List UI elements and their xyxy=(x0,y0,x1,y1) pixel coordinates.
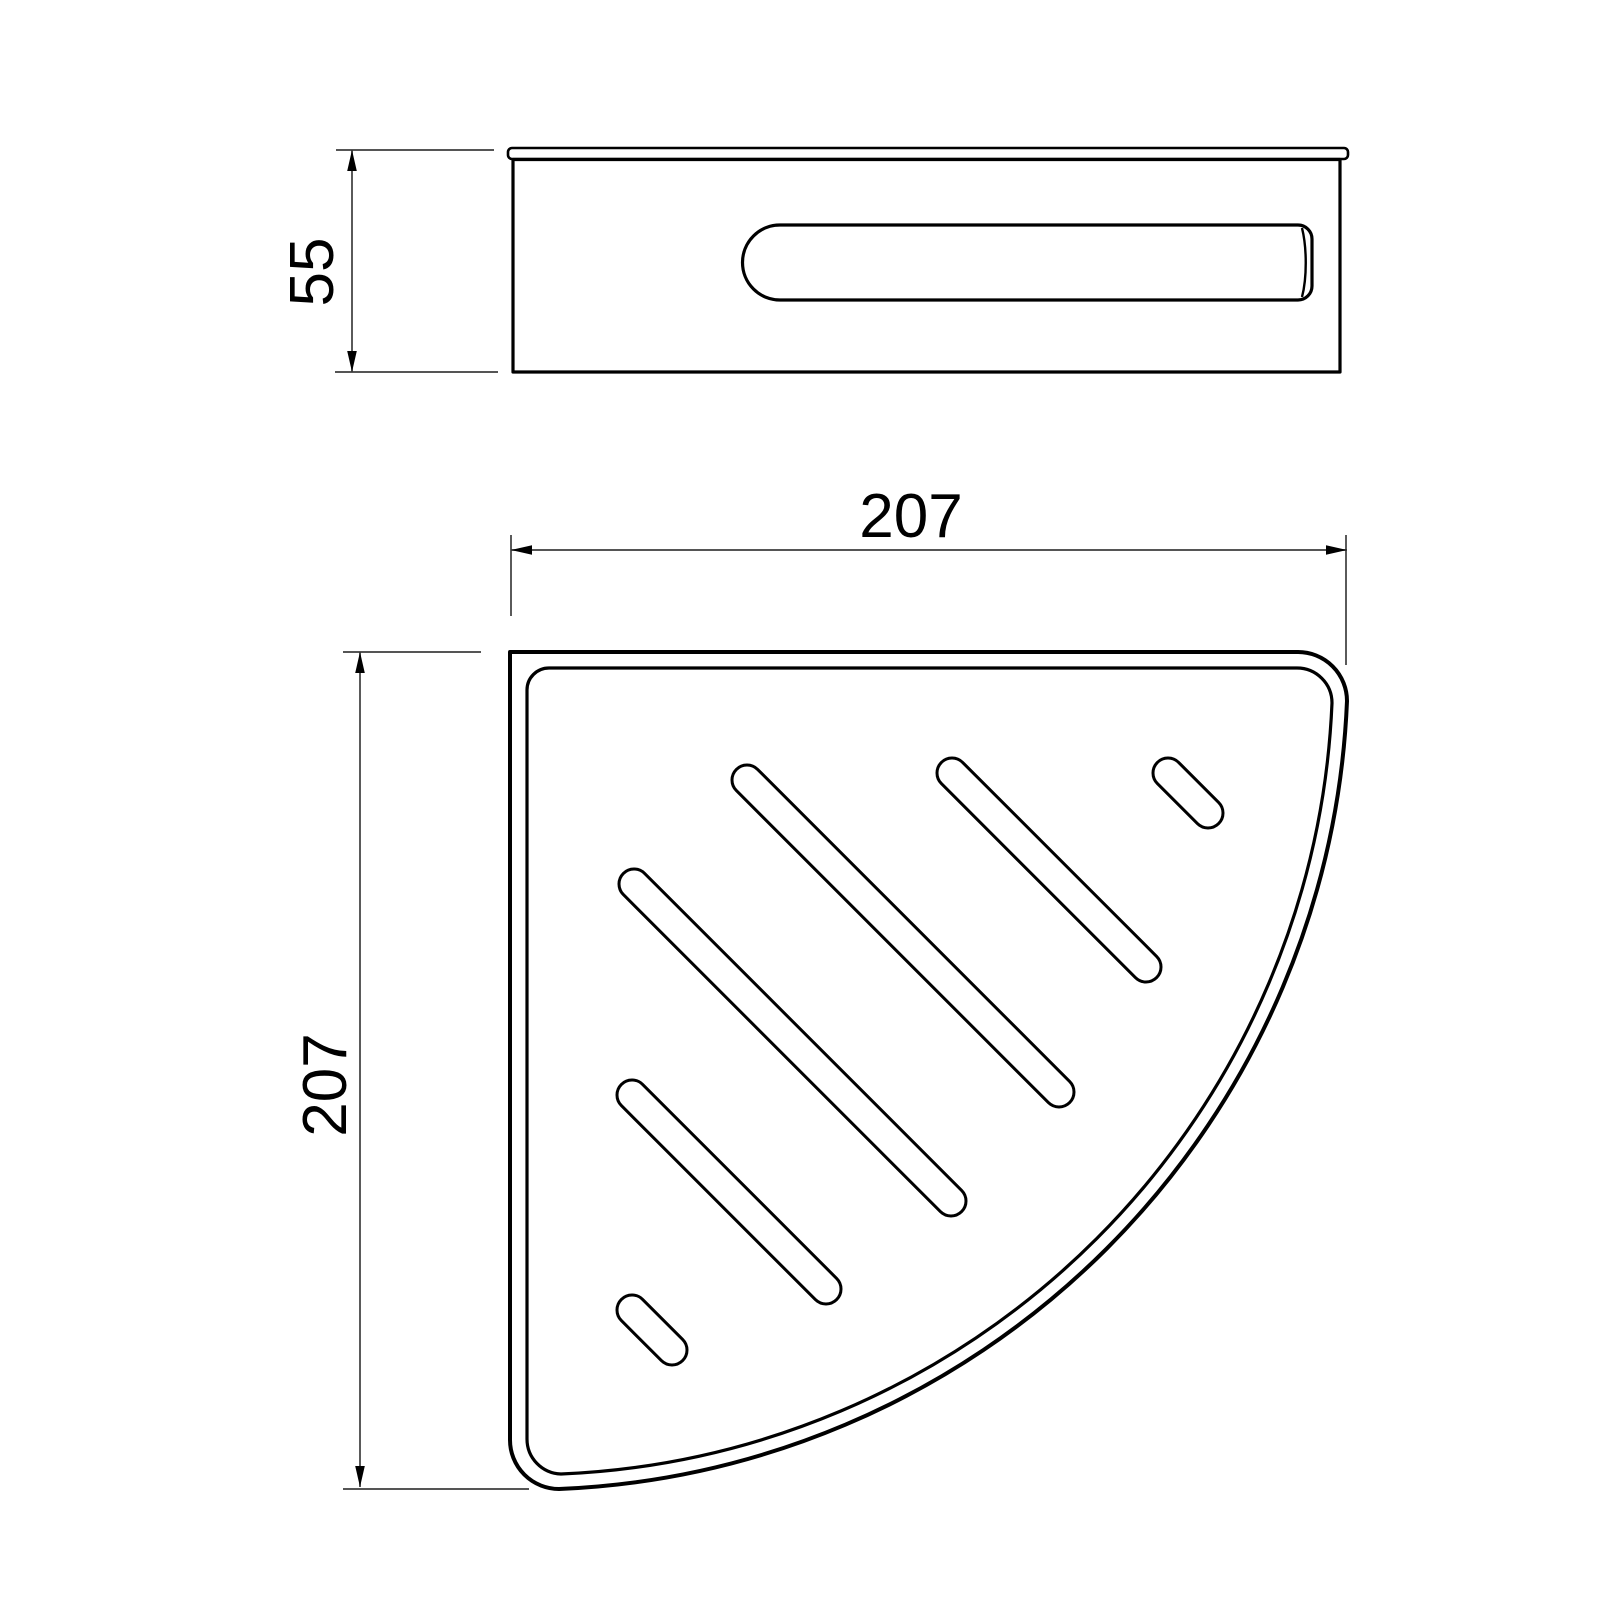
height-arrow-down xyxy=(347,351,357,372)
depth-dimension-label: 207 xyxy=(291,1033,360,1136)
plan-view xyxy=(510,652,1347,1489)
side-view-rim-flange xyxy=(508,148,1348,159)
drawing-sheet: 55 207 207 xyxy=(0,0,1600,1600)
side-view-slot-inner-edge xyxy=(1302,228,1306,297)
depth-arrow-up xyxy=(355,652,365,673)
height-dimension: 55 xyxy=(278,150,498,372)
width-arrow-right xyxy=(1326,545,1347,555)
height-arrow-up xyxy=(347,150,357,171)
side-view-slot xyxy=(743,225,1312,300)
width-dimension: 207 xyxy=(511,482,1347,665)
depth-arrow-down xyxy=(355,1466,365,1487)
plan-view-outer-rim xyxy=(510,652,1347,1489)
height-dimension-label: 55 xyxy=(278,238,347,307)
technical-drawing: 55 207 207 xyxy=(0,0,1600,1600)
depth-dimension: 207 xyxy=(291,652,529,1489)
side-view xyxy=(508,148,1348,372)
width-dimension-label: 207 xyxy=(859,482,962,551)
side-view-body xyxy=(513,160,1340,373)
width-arrow-left xyxy=(511,545,532,555)
